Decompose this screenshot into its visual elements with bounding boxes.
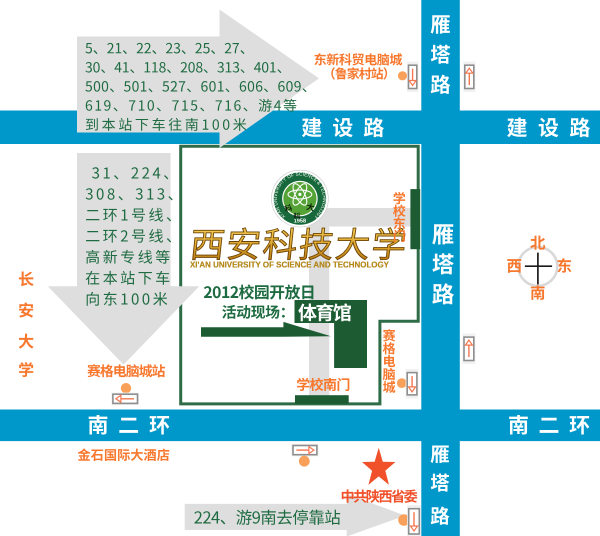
svg-text:1958: 1958 bbox=[294, 219, 306, 225]
svg-text:XI'AN UNIVERSITY OF SCIENCE AN: XI'AN UNIVERSITY OF SCIENCE AND TECHNOLO… bbox=[190, 261, 390, 270]
